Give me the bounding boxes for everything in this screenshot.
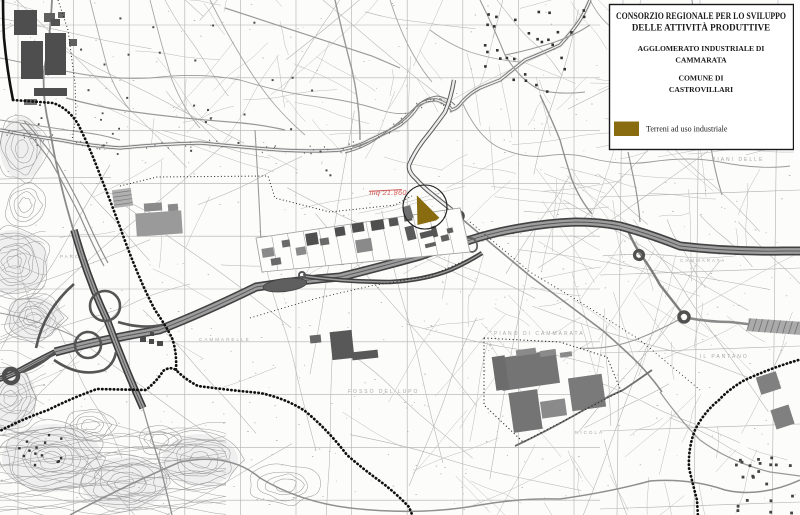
svg-text:Terreni ad uso industriale: Terreni ad uso industriale: [646, 125, 728, 134]
svg-text:AGGLOMERATO INDUSTRIALE DI: AGGLOMERATO INDUSTRIALE DI: [638, 44, 765, 53]
svg-text:COMUNE DI: COMUNE DI: [679, 74, 724, 83]
svg-text:DELLE ATTIVITÀ PRODUTTIVE: DELLE ATTIVITÀ PRODUTTIVE: [632, 23, 770, 33]
svg-text:PIANI DELLE: PIANI DELLE: [712, 157, 764, 163]
svg-text:IL PANTANO: IL PANTANO: [700, 354, 749, 360]
svg-text:CONSORZIO REGIONALE PER LO SVI: CONSORZIO REGIONALE PER LO SVILUPPO: [616, 11, 786, 21]
svg-text:PARCO: PARCO: [60, 254, 86, 259]
svg-text:CAMMARATA: CAMMARATA: [680, 258, 726, 263]
svg-text:FOSSO DEL LUPO: FOSSO DEL LUPO: [348, 389, 419, 395]
svg-text:CAMMARELLE: CAMMARELLE: [199, 337, 251, 342]
svg-text:NICOLA: NICOLA: [575, 430, 604, 435]
svg-text:PIANO DI CAMMARATA: PIANO DI CAMMARATA: [494, 331, 585, 337]
svg-text:CASTROVILLARI: CASTROVILLARI: [669, 85, 733, 94]
svg-text:CAMMARATA: CAMMARATA: [675, 56, 727, 65]
